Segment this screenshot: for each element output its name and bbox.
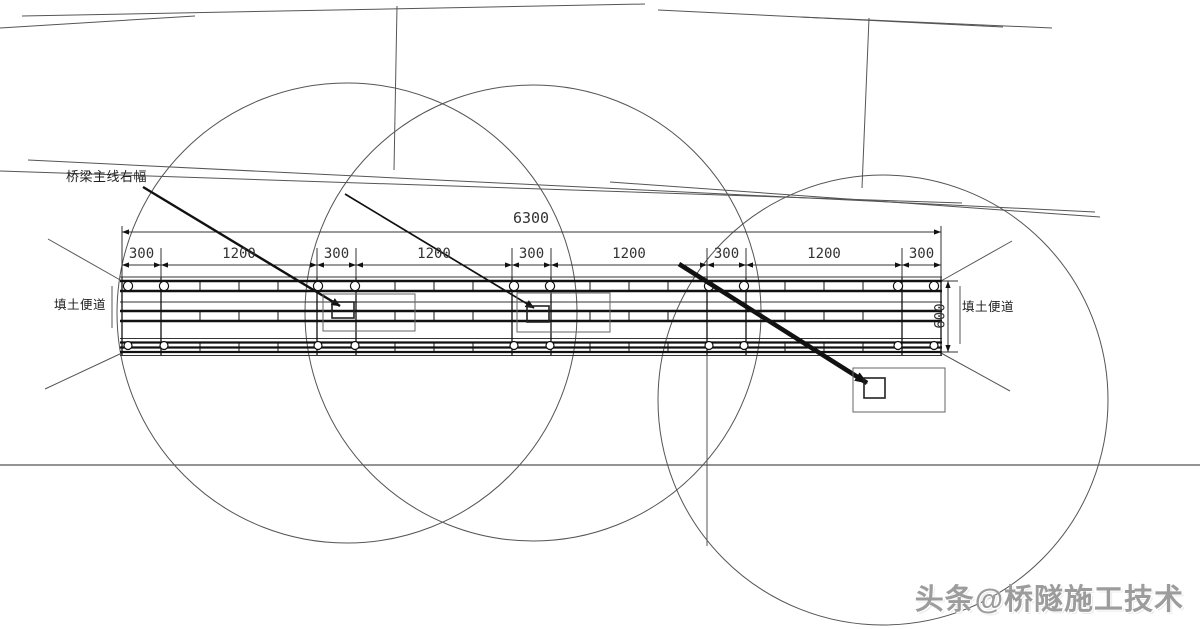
dimension-arrow [356, 262, 363, 267]
pipe-end-circle-top [509, 281, 518, 290]
dimension-arrow [122, 262, 129, 267]
pipe-end-circle-bottom [740, 342, 748, 350]
bridge-main-line-label: 桥梁主线右幅 [66, 170, 147, 183]
survey-circle-middle [305, 85, 761, 541]
dimension-arrow [317, 262, 324, 267]
dimension-label: 300 [129, 246, 154, 262]
pipe-end-circle-bottom [930, 342, 938, 350]
dimension-arrow [895, 262, 902, 267]
pipe-end-circle-top [545, 281, 554, 290]
dimension-label: 300 [909, 246, 934, 262]
terrain-line-mid-3 [610, 182, 1100, 217]
dimension-label: 1200 [612, 246, 646, 262]
pipe-end-circle-top [313, 281, 322, 290]
dimension-arrow [512, 262, 519, 267]
height-dim-arrow-top [945, 281, 950, 288]
drawing-page: 桥梁主线右幅 填土便道 填土便道 6300 300120030012003001… [0, 0, 1200, 629]
dimension-arrow [505, 262, 512, 267]
dimension-label: 300 [519, 246, 544, 262]
dimension-label: 1200 [807, 246, 841, 262]
pipe-end-circle-bottom [546, 342, 554, 350]
dimension-arrow [310, 262, 317, 267]
dimension-arrow [161, 262, 168, 267]
dimension-arrow [746, 262, 753, 267]
pipe-end-circle-bottom [510, 342, 518, 350]
dimension-label: 1200 [417, 246, 451, 262]
survey-circles [117, 83, 1108, 625]
dimension-arrow [934, 262, 941, 267]
survey-circle-right [658, 175, 1108, 625]
terrain-line-top-left [22, 4, 645, 16]
beam-structure [120, 277, 942, 356]
pipe-end-circle-bottom [314, 342, 322, 350]
beam-height-dimension: 600 [934, 303, 948, 328]
dimension-arrow [551, 262, 558, 267]
terrain-line-top-right-2 [800, 17, 1052, 28]
access-road-label-right: 填土便道 [962, 301, 1014, 314]
pipe-end-circle-bottom [124, 342, 132, 350]
pipe-end-circle-top [893, 281, 902, 290]
anchor-box-3 [853, 368, 945, 412]
terrain-lines [0, 4, 1200, 546]
anchor-box-2 [517, 293, 610, 332]
total-dim-arrow-left [122, 229, 129, 234]
height-dim-arrow-bottom [945, 345, 950, 352]
fan-line-upper-left [48, 239, 122, 281]
fan-line-upper-right [941, 241, 1012, 281]
dimension-arrow [739, 262, 746, 267]
pipe-end-circle-top [929, 281, 938, 290]
fan-line-lower-left [45, 353, 122, 389]
dimension-arrow [349, 262, 356, 267]
dimension-label: 300 [714, 246, 739, 262]
watermark: 头条@桥隧施工技术 [915, 576, 1184, 618]
pipe-end-circle-top [159, 281, 168, 290]
anchor-plate-2 [527, 306, 549, 322]
dimension-arrow [902, 262, 909, 267]
pipe-end-circle-bottom [160, 342, 168, 350]
pipe-end-circle-bottom [351, 342, 359, 350]
drawing-canvas [0, 0, 1200, 629]
dimension-label: 300 [324, 246, 349, 262]
anchor-box-1 [323, 294, 415, 331]
dimension-label: 1200 [222, 246, 256, 262]
dimension-arrow [544, 262, 551, 267]
leader-arrows [143, 187, 867, 383]
pipe-end-circle-top [739, 281, 748, 290]
dimension-arrow [154, 262, 161, 267]
pipe-end-circle-bottom [894, 342, 902, 350]
access-road-label-left: 填土便道 [54, 299, 106, 312]
pipe-end-circle-top [350, 281, 359, 290]
dimension-arrow [700, 262, 707, 267]
pipe-end-circle-bottom [705, 342, 713, 350]
total-dim-arrow-right [934, 229, 941, 234]
dimension-arrow [707, 262, 714, 267]
dimension-lines [122, 226, 958, 352]
terrain-line-top-left-2 [0, 16, 195, 28]
total-length-dimension: 6300 [513, 211, 549, 226]
pipe-end-circle-top [123, 281, 132, 290]
terrain-line-mid-1 [28, 160, 1095, 212]
survey-circle-left [117, 83, 577, 543]
boundary-slant-line-right [862, 18, 869, 188]
fan-line-lower-right [941, 353, 1010, 391]
